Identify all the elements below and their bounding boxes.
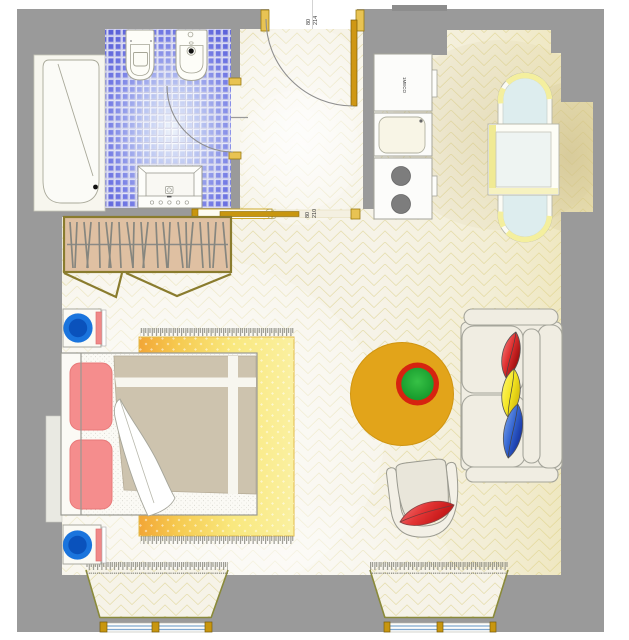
- svg-text:210: 210: [312, 209, 318, 218]
- svg-text:80: 80: [305, 212, 311, 218]
- svg-text:214: 214: [313, 16, 319, 25]
- svg-text:80: 80: [306, 19, 312, 25]
- svg-text:1MECO: 1MECO: [402, 77, 407, 94]
